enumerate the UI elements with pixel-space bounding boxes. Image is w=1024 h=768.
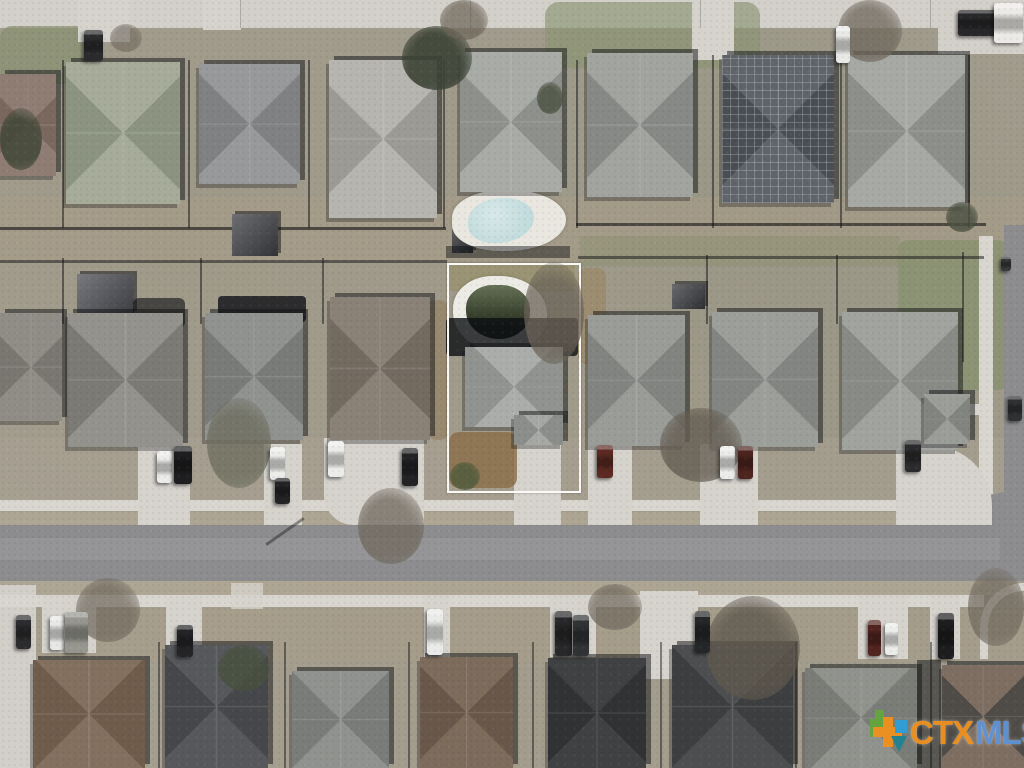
sidewalk-right-vertical	[979, 236, 993, 494]
sidewalk-lower	[0, 595, 984, 607]
car-white-r2-c	[328, 441, 344, 477]
car-white-r2-b	[270, 447, 285, 480]
fence-r1-v1	[62, 60, 64, 228]
lot-shrub	[450, 462, 480, 490]
house-row2-1	[0, 313, 62, 421]
fence-row1-rear-west	[0, 227, 446, 230]
car-white-r2-d	[720, 446, 735, 479]
car-maroon-r2-e	[597, 445, 613, 478]
house-row3-1	[33, 660, 145, 768]
house-row2-7-wing	[924, 394, 970, 444]
fence-r1-v8	[968, 55, 970, 228]
fence-r2-v4	[706, 255, 708, 324]
car-black-r2-b	[275, 478, 290, 504]
car-dark-r3-d2	[573, 615, 589, 656]
trailer-r3-a	[65, 612, 88, 653]
bare-tree-corner	[968, 568, 1024, 646]
texas-icon-orange-bar-v	[883, 717, 893, 747]
bushy-tree-rc-front	[207, 398, 271, 488]
fence-r3-v2	[284, 642, 286, 768]
car-on-side-street	[1008, 396, 1022, 421]
fence-r3-v1	[158, 642, 160, 768]
grass-mid-green-strip	[580, 236, 900, 266]
suv-dark-r3-g	[938, 613, 954, 659]
bare-tree-topleft	[440, 0, 488, 40]
ctxmls-texas-logo-icon	[870, 710, 908, 754]
fence-r1-v7	[840, 55, 842, 228]
house-row1-7-solar	[722, 55, 834, 203]
texas-icon-blue-part	[895, 720, 907, 733]
car-dark-r3-b	[177, 625, 193, 657]
house-row3-3	[292, 671, 389, 768]
house-row1-8	[848, 55, 965, 207]
shrub-h5	[537, 82, 563, 114]
fence-row2-rear-west	[0, 260, 447, 263]
boat-r1	[836, 26, 850, 63]
house-row1-2	[66, 62, 180, 204]
truck-cab-r3-a	[50, 616, 64, 650]
shrub-right-backyard	[946, 202, 978, 232]
car-maroon-r2-d	[738, 446, 753, 479]
car-white-r3-f	[885, 623, 898, 655]
fence-r2-v6	[962, 252, 964, 362]
rv-top-right-corner	[994, 3, 1023, 43]
dirt-left-of-lot	[428, 300, 448, 440]
car-dark-r2-g	[905, 440, 921, 472]
fence-r3-v3	[408, 642, 410, 768]
texas-icon-teal-part	[891, 736, 907, 752]
driveway-r3-f	[858, 595, 908, 659]
bare-tree-top-small	[110, 24, 142, 52]
left-drive-strip	[0, 585, 36, 768]
fence-r1-v6	[712, 55, 714, 228]
ctxmls-watermark: CTXMLS	[870, 710, 1024, 754]
shed-rb	[77, 274, 134, 314]
fence-r2-v3	[322, 258, 324, 324]
car-white-r2-a	[157, 451, 172, 483]
bare-tree-lot	[524, 262, 584, 364]
driveway-r1-b	[203, 0, 241, 30]
evergreen-bottom-left	[218, 645, 270, 691]
driveway-r1-c	[692, 0, 734, 60]
fence-r2-v5	[836, 255, 838, 324]
fence-r3-v4	[532, 642, 534, 768]
car-maroon-r3-f	[868, 620, 881, 656]
shed-row1-mid	[232, 214, 278, 256]
trash-bin-curb	[1001, 257, 1011, 271]
fence-r1-v3	[308, 60, 310, 228]
concrete-seam-4	[930, 0, 931, 28]
fence-r3-v5	[660, 642, 662, 768]
house-row1-5	[460, 52, 562, 192]
car-dark-r3-d1	[555, 611, 572, 656]
watermark-text-ctx: CTX	[910, 716, 973, 749]
house-row2-2	[68, 313, 183, 447]
bare-tree-street-3	[588, 584, 642, 630]
house-row1-6	[587, 53, 693, 197]
evergreen-left-edge	[0, 108, 42, 170]
apron-r3	[231, 583, 263, 609]
van-white-r3-c	[427, 609, 443, 655]
fence-row2-rear-east	[578, 256, 984, 259]
street-wear-band	[0, 538, 1000, 560]
fence-r1-v2	[188, 60, 190, 228]
car-r1-driveway	[84, 30, 103, 61]
car-black-r2-a	[174, 446, 192, 484]
watermark-text-mls: MLS	[975, 716, 1024, 749]
house-row3-5	[548, 658, 646, 768]
house-row2-4	[330, 297, 430, 440]
concrete-seam-3	[700, 0, 701, 28]
big-bare-tree-bottom	[706, 596, 800, 700]
car-left-strip	[16, 615, 31, 649]
shadow-pool1-fence	[446, 246, 570, 258]
fence-r1-v5	[576, 60, 578, 228]
concrete-seam-1	[240, 0, 241, 28]
fence-r2-v1	[62, 258, 64, 324]
house-row1-3	[199, 64, 300, 184]
parkway-lower	[0, 581, 1010, 595]
car-dark-r3-e	[695, 611, 710, 653]
fence-r2-v2	[200, 258, 202, 324]
aerial-neighborhood-photo: CTXMLS	[0, 0, 1024, 768]
shed-mid-right	[672, 284, 705, 309]
car-black-r2-c	[402, 448, 418, 486]
bare-tree-street-1	[358, 488, 424, 564]
house-row3-4	[420, 657, 513, 768]
fence-row1-rear-east	[576, 223, 986, 226]
